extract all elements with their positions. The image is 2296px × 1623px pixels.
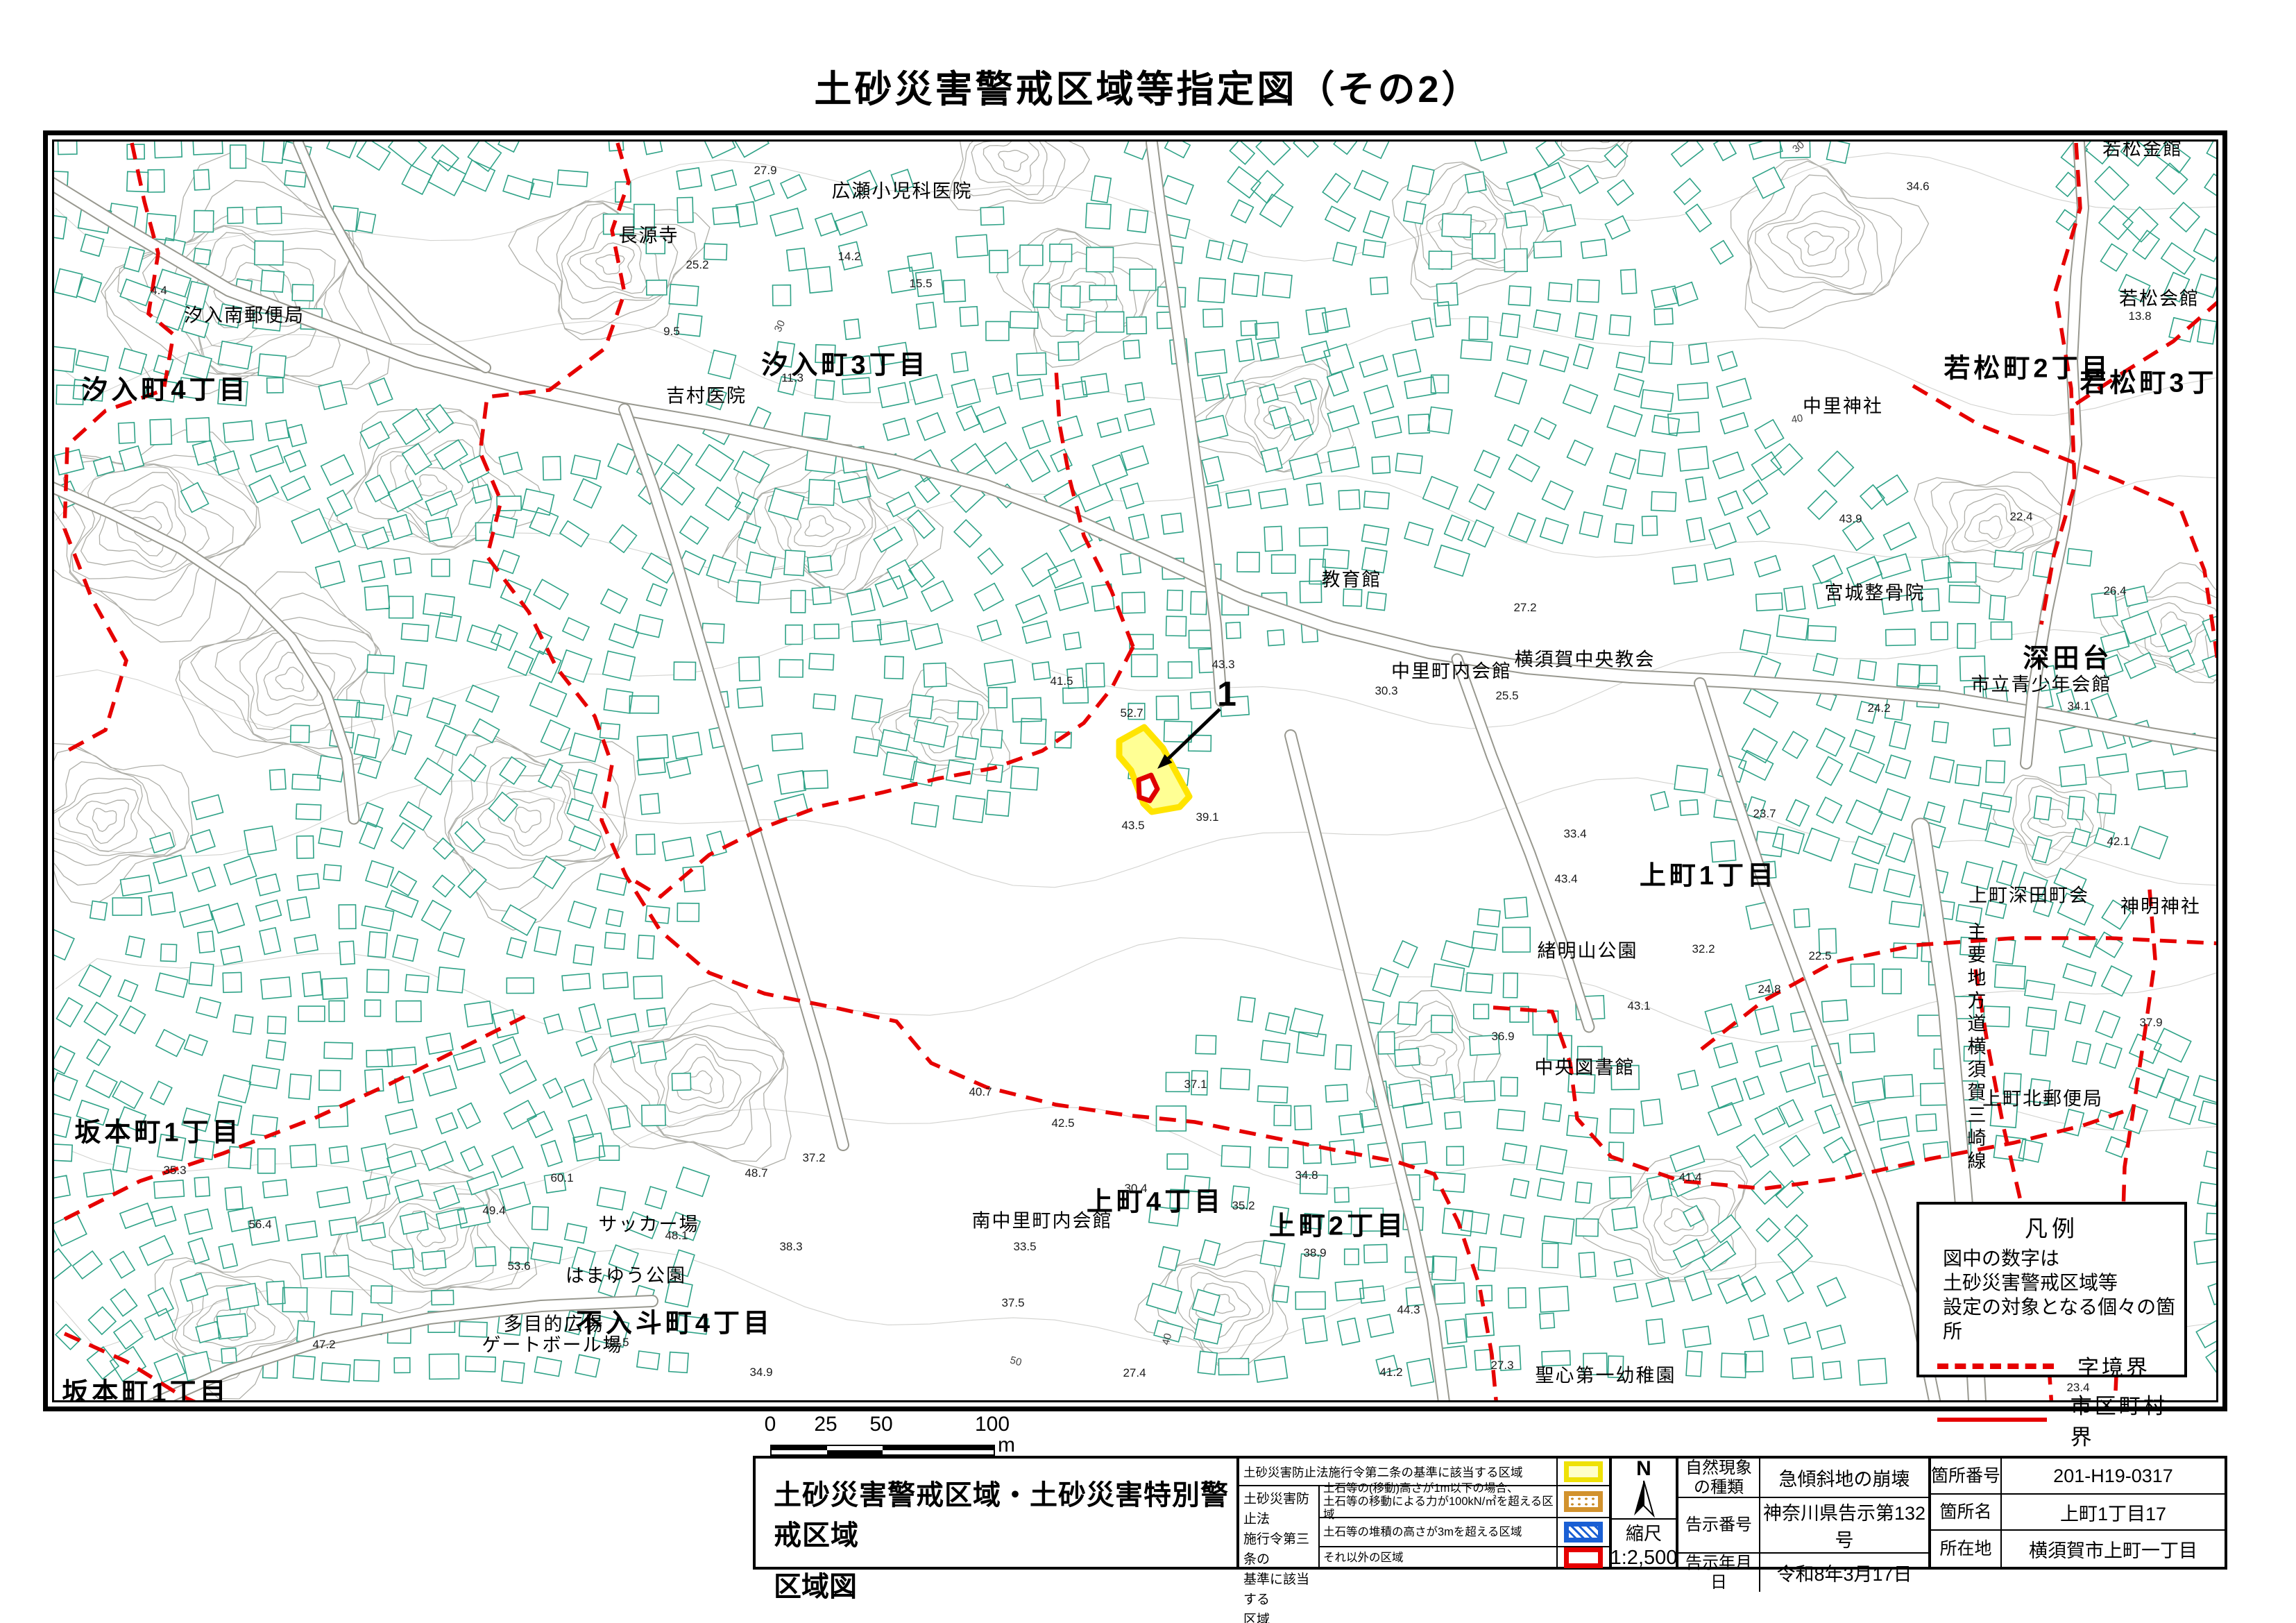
- info-value: 令和8年3月17日: [1760, 1554, 1928, 1592]
- spot-elevation-label: 42.1: [2107, 835, 2129, 849]
- place-label: 汐入南郵便局: [184, 300, 305, 328]
- sheet-title-line2: 区域図: [774, 1564, 1236, 1604]
- spot-elevation-label: 27.9: [754, 164, 776, 178]
- spot-elevation-label: 32.2: [1692, 942, 1715, 956]
- spot-elevation-label: 35.3: [163, 1164, 186, 1178]
- spot-elevation-label: 34.8: [1295, 1169, 1318, 1182]
- hazard-map-sheet: 土砂災害警戒区域等指定図（その2） 汐入町4丁目汐入町3丁目若松町2丁目若松町3…: [0, 0, 2296, 1623]
- spot-elevation-label: 43.4: [1554, 872, 1577, 886]
- spot-elevation-label: 53.6: [507, 1259, 530, 1273]
- place-label: 緒明山公園: [1538, 936, 1638, 963]
- spot-elevation-label: 37.5: [1001, 1296, 1024, 1310]
- place-label: 宮城整骨院: [1825, 578, 1925, 605]
- spot-elevation-label: 14.2: [837, 250, 860, 264]
- spot-elevation-label: 24.2: [1867, 702, 1890, 715]
- place-label: はまゆう公園: [566, 1261, 686, 1288]
- swatch-cell: [1556, 1547, 1609, 1568]
- article3-line: 土砂災害防止法: [1243, 1489, 1318, 1529]
- spot-elevation-label: 9.5: [663, 325, 680, 339]
- contour-elevation-label: 40: [1160, 1332, 1175, 1347]
- article3-line: 区域: [1243, 1610, 1318, 1623]
- scale-cell: 縮尺 1:2,500: [1612, 1520, 1676, 1570]
- spot-elevation-label: 43.5: [1121, 819, 1144, 833]
- spot-elevation-label: 34.1: [2067, 699, 2090, 713]
- scale-tick: 0: [765, 1413, 776, 1436]
- place-label: 上町深田町会: [1968, 881, 2089, 908]
- scale-label: 縮尺: [1626, 1520, 1662, 1545]
- spot-elevation-label: 33.4: [1563, 827, 1586, 841]
- swatch-cell: [1556, 1486, 1609, 1518]
- spot-elevation-label: 25.2: [686, 258, 708, 272]
- scale-bar-ticks: 0 25 50 100: [762, 1413, 1015, 1435]
- place-label: 南中里町内会館: [972, 1206, 1113, 1233]
- article3-line: 施行令第三条の: [1243, 1529, 1318, 1570]
- place-label: 市立青少年会館: [1971, 670, 2112, 697]
- spot-elevation-label: 48.5: [606, 1336, 629, 1350]
- spot-elevation-label: 13.8: [2128, 309, 2151, 323]
- spot-elevation-label: 38.3: [779, 1240, 802, 1254]
- spot-elevation-label: 27.4: [1123, 1366, 1146, 1380]
- place-label: 若松会館: [2119, 284, 2200, 311]
- spot-elevation-label: 43.3: [1211, 658, 1234, 672]
- district-label: 坂本町1丁目: [74, 1111, 241, 1149]
- site-label: 箇所名: [1931, 1495, 2002, 1531]
- blue-hatched-zone-swatch-icon: [1564, 1522, 1603, 1543]
- spot-elevation-label: 35.2: [1232, 1199, 1255, 1213]
- spot-elevation-label: 37.9: [2139, 1016, 2162, 1030]
- legend-note: 図中の数字は 土砂災害警戒区域等 設定の対象となる個々の箇所: [1943, 1246, 2184, 1343]
- spot-elevation-label: 48.1: [665, 1229, 688, 1243]
- spot-elevation-label: 38.9: [1303, 1246, 1326, 1260]
- dashed-line-sample-icon: [1937, 1363, 2054, 1369]
- page-title: 土砂災害警戒区域等指定図（その2）: [0, 58, 2296, 113]
- swatch-cell: [1556, 1518, 1609, 1547]
- scale-tick: 25: [814, 1413, 837, 1436]
- place-label: 教育館: [1322, 565, 1382, 592]
- site-label: 所在地: [1931, 1531, 2002, 1567]
- contour-elevation-label: 40: [1790, 412, 1803, 426]
- legend-title: 凡例: [1919, 1210, 2184, 1243]
- zone-desc-line: 土石等の移動による力が100kN/㎡を超える区域: [1323, 1495, 1556, 1522]
- site-value: 横須賀市上町一丁目: [2002, 1531, 2225, 1567]
- spot-elevation-label: 37.2: [802, 1151, 825, 1165]
- spot-elevation-label: 27.3: [1490, 1359, 1513, 1373]
- map-legend: 凡例 図中の数字は 土砂災害警戒区域等 設定の対象となる個々の箇所 字境界 市区…: [1916, 1202, 2187, 1377]
- compass-cell: N: [1612, 1459, 1676, 1520]
- spot-elevation-label: 36.9: [1491, 1030, 1514, 1044]
- district-label: 汐入町4丁目: [81, 368, 248, 407]
- north-arrow-icon: [1629, 1479, 1659, 1518]
- sheet-title-cell: 土砂災害警戒区域・土砂災害特別警戒区域 区域図: [753, 1456, 1239, 1570]
- legend-item-label: 字境界: [2077, 1350, 2150, 1382]
- site-value: 上町1丁目17: [2002, 1495, 2225, 1531]
- place-label: 上町北郵便局: [1982, 1084, 2103, 1111]
- zone-desc-other: それ以外の区域: [1320, 1547, 1556, 1568]
- legend-item-municipal-boundary: 市区町村界: [1937, 1388, 2184, 1451]
- spot-elevation-label: 34.9: [749, 1366, 772, 1379]
- spot-elevation-label: 25.5: [1495, 689, 1518, 703]
- zone-desc-line: 土石等の堆積の高さが3mを超える区域: [1323, 1526, 1556, 1539]
- spot-elevation-label: 37.1: [1184, 1078, 1207, 1091]
- spot-elevation-label: 43.1: [1627, 999, 1650, 1013]
- zone-desc-deposit: 土石等の堆積の高さが3mを超える区域: [1320, 1518, 1556, 1547]
- map-canvas: 汐入町4丁目汐入町3丁目若松町2丁目若松町3丁目深田台上町1丁目坂本町1丁目上町…: [43, 130, 2227, 1411]
- zone-desc-movement: 土石等の(移動)高さが1m以下の場合、 土石等の移動による力が100kN/㎡を超…: [1320, 1486, 1556, 1518]
- sheet-title-line1: 土砂災害警戒区域・土砂災害特別警戒区域: [774, 1472, 1236, 1553]
- red-zone-swatch-icon: [1564, 1547, 1603, 1568]
- district-label: 上町2丁目: [1269, 1205, 1406, 1243]
- spot-elevation-label: 39.1: [1196, 810, 1218, 824]
- place-label: 長源寺: [619, 221, 679, 248]
- article3-zone-label: 土砂災害防止法 施行令第三条の 基準に該当する 区域: [1239, 1486, 1320, 1568]
- legend-item-aza-boundary: 字境界: [1937, 1350, 2184, 1382]
- notification-info-table: 自然現象の種類 急傾斜地の崩壊 告示番号 神奈川県告示第132号 告示年月日 令…: [1676, 1456, 1931, 1570]
- info-label: 告示年月日: [1678, 1554, 1760, 1592]
- place-label: 中里神社: [1803, 391, 1883, 418]
- spot-elevation-label: 22.4: [2009, 510, 2032, 524]
- spot-elevation-label: 52.7: [1120, 706, 1143, 720]
- place-label: 神明神社: [2120, 892, 2201, 919]
- article3-line: 基準に該当する: [1243, 1570, 1318, 1610]
- spot-elevation-label: 33.5: [1013, 1240, 1036, 1254]
- yellow-zone-swatch-icon: [1564, 1461, 1603, 1482]
- legend-item-label: 市区町村界: [2070, 1388, 2184, 1451]
- site-info-table: 箇所番号 201-H19-0317 箇所名 上町1丁目17 所在地 横須賀市上町…: [1928, 1456, 2227, 1570]
- spot-elevation-label: 47.2: [312, 1338, 335, 1352]
- place-label: 吉村医院: [666, 381, 747, 408]
- north-label: N: [1636, 1459, 1651, 1479]
- legend-note-line: 設定の対象となる個々の箇所: [1943, 1295, 2184, 1343]
- spot-elevation-label: 23.7: [1753, 807, 1776, 821]
- scale-tick: 100: [975, 1413, 1010, 1436]
- swatch-cell: [1556, 1459, 1609, 1486]
- place-label: ゲートボール場: [482, 1330, 623, 1357]
- map-label-layer: 汐入町4丁目汐入町3丁目若松町2丁目若松町3丁目深田台上町1丁目坂本町1丁目上町…: [54, 142, 2216, 1400]
- spot-elevation-label: 49.4: [482, 1204, 505, 1218]
- designated-area-number: 1: [1217, 674, 1236, 714]
- place-label: 主要地方道横須賀三崎線: [1962, 922, 1989, 1174]
- contour-elevation-label: 30: [772, 318, 788, 334]
- spot-elevation-label: 43.9: [1839, 512, 1862, 526]
- spot-elevation-label: 4.4: [151, 284, 167, 298]
- spot-elevation-label: 22.5: [1808, 949, 1831, 963]
- spot-elevation-label: 40.7: [969, 1085, 992, 1099]
- scale-bar-strip: [770, 1445, 995, 1456]
- scale-unit: m: [998, 1435, 1015, 1456]
- district-label: 若松町3丁目: [2080, 362, 2216, 400]
- scale-value: 1:2,500: [1610, 1547, 1678, 1570]
- spot-elevation-label: 41.4: [1678, 1171, 1701, 1184]
- compass-scale-cell: N 縮尺 1:2,500: [1609, 1456, 1678, 1570]
- orange-dotted-zone-swatch-icon: [1564, 1491, 1603, 1512]
- site-label: 箇所番号: [1931, 1459, 2002, 1495]
- spot-elevation-label: 30.4: [1124, 1182, 1147, 1196]
- contour-elevation-label: 50: [1009, 1354, 1023, 1369]
- scale-segment: [772, 1450, 827, 1454]
- place-label: 中里町内会館: [1391, 656, 1512, 683]
- info-value: 神奈川県告示第132号: [1760, 1498, 1928, 1554]
- spot-elevation-label: 27.2: [1513, 601, 1536, 615]
- spot-elevation-label: 44.3: [1397, 1303, 1420, 1317]
- zone-desc-line: 土石等の(移動)高さが1m以下の場合、: [1323, 1482, 1556, 1495]
- place-label: 横須賀中央教会: [1515, 645, 1656, 672]
- place-label: 聖心第一幼稚園: [1536, 1361, 1676, 1388]
- scale-bar: 0 25 50 100 m: [762, 1413, 1015, 1456]
- info-label: 告示番号: [1678, 1498, 1760, 1554]
- scale-tick: 50: [869, 1413, 892, 1436]
- zone-desc-line: それ以外の区域: [1323, 1552, 1556, 1565]
- spot-elevation-label: 30.3: [1375, 684, 1397, 698]
- spot-elevation-label: 41.2: [1379, 1366, 1402, 1379]
- legend-note-line: 図中の数字は: [1943, 1246, 2184, 1271]
- spot-elevation-label: 56.4: [248, 1218, 271, 1232]
- place-label: 中央図書館: [1535, 1053, 1635, 1080]
- solid-line-sample-icon: [1937, 1418, 2047, 1422]
- info-value: 急傾斜地の崩壊: [1760, 1459, 1928, 1498]
- spot-elevation-label: 41.5: [1050, 674, 1073, 688]
- spot-elevation-label: 24.8: [1758, 983, 1780, 996]
- spot-elevation-label: 48.7: [745, 1166, 767, 1180]
- info-label: 自然現象の種類: [1678, 1459, 1760, 1498]
- scale-segment: [883, 1450, 994, 1454]
- spot-elevation-label: 34.6: [1906, 180, 1929, 194]
- legend-note-line: 土砂災害警戒区域等: [1943, 1271, 2184, 1295]
- scale-segment: [827, 1450, 883, 1454]
- site-value: 201-H19-0317: [2002, 1459, 2225, 1495]
- spot-elevation-label: 60.1: [550, 1171, 573, 1185]
- spot-elevation-label: 15.5: [909, 277, 932, 291]
- place-label: 若松金館: [2102, 142, 2183, 161]
- district-label: 坂本町1丁目: [62, 1371, 229, 1401]
- spot-elevation-label: 11.3: [781, 371, 803, 385]
- contour-elevation-label: 30: [1790, 142, 1807, 155]
- spot-elevation-label: 26.4: [2103, 584, 2126, 598]
- spot-elevation-label: 42.5: [1051, 1116, 1074, 1130]
- zone-category-table: 土砂災害防止法施行令第二条の基準に該当する区域 土砂災害防止法 施行令第三条の …: [1236, 1456, 1612, 1570]
- district-label: 上町1丁目: [1640, 854, 1777, 892]
- place-label: 広瀬小児科医院: [832, 176, 973, 203]
